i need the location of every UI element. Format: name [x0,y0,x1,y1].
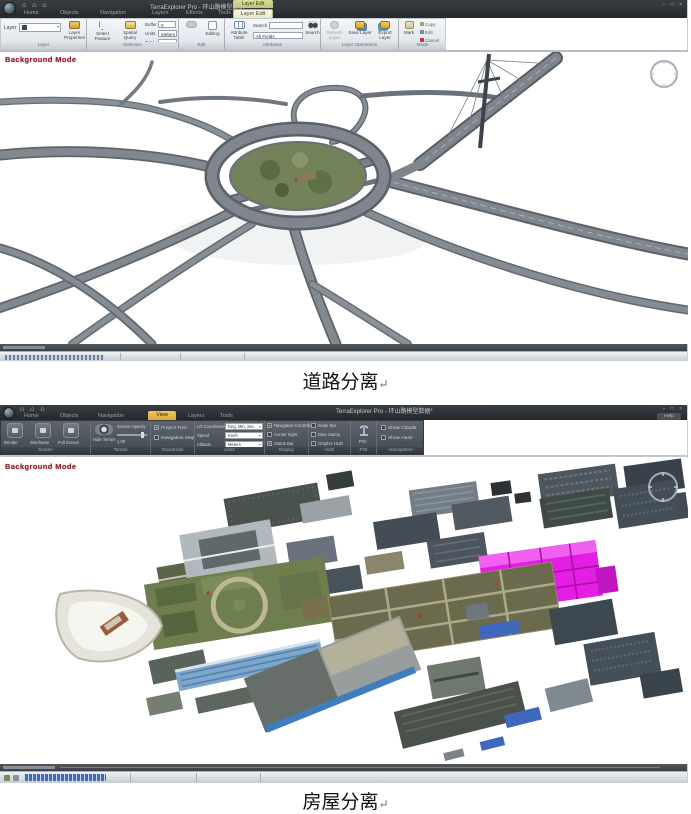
terraexplorer-window-roads: ⌂ ⌂ ⌂ TerraExplorer Pro - 环山路模型数据* – □ ×… [0,0,688,361]
mark-button[interactable]: Mark [400,21,418,35]
title-bar[interactable]: ⌂ ⌂ ⌂ TerraExplorer Pro - 环山路模型数据* – □ ×… [0,0,687,18]
group-caption: Edit [179,42,224,49]
layer-label: Layer [4,25,17,31]
tab-home[interactable]: Home [24,10,39,16]
status-bar [0,771,687,783]
background-mode-label: Background Mode [5,55,76,64]
timeline-knob[interactable] [3,346,45,349]
close-icon[interactable]: × [679,406,684,412]
save-layer-icon [355,21,365,29]
3d-view-buildings[interactable]: Background Mode [0,458,688,764]
pond [56,591,162,662]
buffer-label: Buffer [145,22,157,27]
ribbon-group-display: Navigation Controls Center Sight Status … [265,421,309,454]
tab-navigation[interactable]: Navigation [98,413,124,419]
table-icon [234,21,245,29]
timeline-strip[interactable] [0,344,687,351]
date-stamp-checkbox[interactable]: Date Stamp [311,432,340,437]
timeline-strip[interactable] [0,764,687,771]
contextual-group-header: Layer Edit [233,0,273,8]
navigation-controls-checkbox[interactable]: Navigation Controls [267,423,311,428]
roundabout [212,129,384,223]
title-bar[interactable]: ⌂ ⌂ ⌂ TerraExplorer Pro - 环山路模型数据* – □ ×… [0,405,687,420]
ribbon-group-layer: Layer ▾ Layer Properties Layer [1,19,87,49]
building-scene [0,458,688,764]
buffer-input[interactable]: 0 [158,21,176,28]
app-menu-orb[interactable] [3,407,15,419]
tab-objects[interactable]: Objects [60,413,79,419]
render-button[interactable] [7,423,23,438]
window-controls[interactable]: – □ × [662,2,684,8]
spatial-query-button[interactable]: Spatial Query [117,21,143,40]
ribbon-group-mode: Mark Copy Edit Cancel Mode [399,19,446,49]
ribbon-group-attributes: Attribute Table Search All Fields Search… [225,19,321,49]
status-bar [0,351,687,361]
ribbon-group-showhide: Project Tree Navigation Map Show/Hide [151,421,195,454]
mini-edit[interactable]: Edit [420,30,433,35]
units-label: Units [145,31,155,36]
status-icon [4,775,10,781]
tab-objects[interactable]: Objects [60,10,79,16]
group-caption: Layer Operations [321,42,398,49]
graphic-hud-checkbox[interactable]: Graphic HUD [311,441,343,446]
ribbon-group-units: LR Coordinates Deg, Min, Sec▾ Speed Km/h… [195,421,265,454]
hide-terrain-eye-icon[interactable] [95,424,113,435]
attribute-table-button[interactable]: Attribute Table [227,21,251,40]
ribbon-layer-edit: Layer ▾ Layer Properties Layer Select Fe… [0,18,446,50]
show-clouds-checkbox[interactable]: Show Clouds [381,425,416,431]
quick-access-toolbar[interactable]: ⌂ ⌂ ⌂ [20,406,47,413]
compass-ring[interactable] [646,470,680,504]
search-input[interactable] [269,22,303,29]
mini-copy[interactable]: Copy [420,22,436,27]
spatial-query-icon [125,21,136,29]
ribbon-group-layer-ops: Refresh Layer Save Layer Export Layer La… [321,19,399,49]
ribbon-view: Render Wireframe Full Screen Screen Hide… [0,420,424,455]
help-button[interactable]: Help [657,413,681,420]
terraexplorer-window-buildings: ⌂ ⌂ ⌂ TerraExplorer Pro - 环山路模型数据* – □ ×… [0,405,688,783]
coordinates-format-combo[interactable]: Deg, Min, Sec▾ [225,423,263,430]
figure-caption-roads: 道路分离↵ [0,367,691,394]
background-mode-label: Background Mode [5,462,76,471]
save-layer-button[interactable]: Save Layer [348,21,372,35]
cursor-icon [99,21,107,30]
tab-layers[interactable]: Layers [152,10,169,16]
tab-effects[interactable]: Effects [186,10,203,16]
ribbon-group-edit: Editing Edit [179,19,225,49]
app-menu-orb[interactable] [3,2,16,15]
close-icon[interactable]: × [679,2,684,8]
3d-view-roads[interactable]: Background Mode [0,52,688,344]
tab-layer-edit-active[interactable]: Layer Edit [233,9,273,18]
select-feature-button[interactable]: Select Feature [90,21,115,41]
quick-access-toolbar[interactable]: ⌂ ⌂ ⌂ [22,2,49,9]
navigation-map-checkbox[interactable]: Navigation Map [154,435,194,441]
maximize-icon[interactable]: □ [671,406,676,412]
ribbon-group-atmosphere: Show Clouds Show Haze Atmosphere [377,421,424,454]
ribbon-group-screen: Render Wireframe Full Screen Screen [1,421,91,454]
window-controls[interactable]: – □ × [662,406,684,412]
layer-combo[interactable]: ▾ [19,23,61,32]
ribbon-group-poi: POI POI [351,421,377,454]
maximize-icon[interactable]: □ [671,2,676,8]
timeline-knob[interactable] [3,766,55,769]
cloud-icon [186,21,197,28]
merge-button-disabled [181,21,201,29]
ribbon-group-selection: Select Feature Spatial Query Buffer 0 Un… [87,19,179,49]
editing-button[interactable]: Editing [202,21,223,36]
suspension-bridge [382,54,556,182]
binoculars-icon [308,21,318,29]
refresh-layer-button: Refresh Layer [322,21,347,40]
project-tree-checkbox[interactable]: Project Tree [154,425,187,431]
tab-tools[interactable]: Tools [220,413,233,419]
minimize-icon[interactable]: – [662,406,667,412]
full-screen-button[interactable] [63,423,79,438]
export-layer-icon [380,21,390,29]
scale-bar-checkbox[interactable]: Scale Bar [311,423,336,428]
group-caption: Layer [1,42,86,49]
window-title: TerraExplorer Pro - 环山路模型数据* [336,406,433,415]
status-icon [13,775,19,781]
center-sight-checkbox[interactable]: Center Sight [267,432,297,437]
ribbon-group-hud: Scale Bar Date Stamp Graphic HUD HUD [309,421,351,454]
group-caption: Selection [87,42,178,49]
tab-navigation[interactable]: Navigation [100,10,126,16]
search-button[interactable]: Search [305,21,320,35]
wireframe-button[interactable] [35,423,51,438]
tab-tools[interactable]: Tools [218,10,231,16]
layer-properties-button[interactable]: Layer Properties [63,21,86,40]
units-combo[interactable]: Meters [158,30,177,37]
folder-icon [69,21,80,29]
opacity-slider-thumb[interactable] [141,432,144,438]
opacity-slider[interactable] [117,434,147,436]
road-interchange-scene [0,52,688,344]
group-caption: Attributes [225,42,320,49]
status-bar-checkbox[interactable]: Status Bar [267,441,294,446]
tab-layers[interactable]: Layers [188,413,205,419]
group-caption: Mode [399,42,446,49]
coordinate-readout-selected [24,774,106,781]
mark-icon [405,21,414,29]
ribbon-bottom-line [0,455,688,457]
poi-antenna-icon[interactable] [358,424,370,437]
tab-home[interactable]: Home [24,413,39,419]
minimize-icon[interactable]: – [662,2,667,8]
show-haze-checkbox[interactable]: Show Haze [381,435,413,441]
refresh-icon [330,21,339,29]
tab-view-active[interactable]: View [148,411,176,420]
coordinate-readout [5,355,105,360]
search-label: Search [253,23,267,28]
figure-caption-buildings: 房屋分离↵ [0,787,691,814]
compass-ring[interactable] [648,58,680,90]
ribbon-group-terrain: Hide Terrain Screen Opacity 1,00 Terrain [91,421,151,454]
search-scope-combo[interactable]: All Fields [253,32,303,39]
paragraph-mark: ↵ [378,377,388,391]
export-layer-button[interactable]: Export Layer [373,21,397,40]
speed-units-combo[interactable]: Km/h▾ [225,432,263,439]
pencil-page-icon [208,21,217,30]
